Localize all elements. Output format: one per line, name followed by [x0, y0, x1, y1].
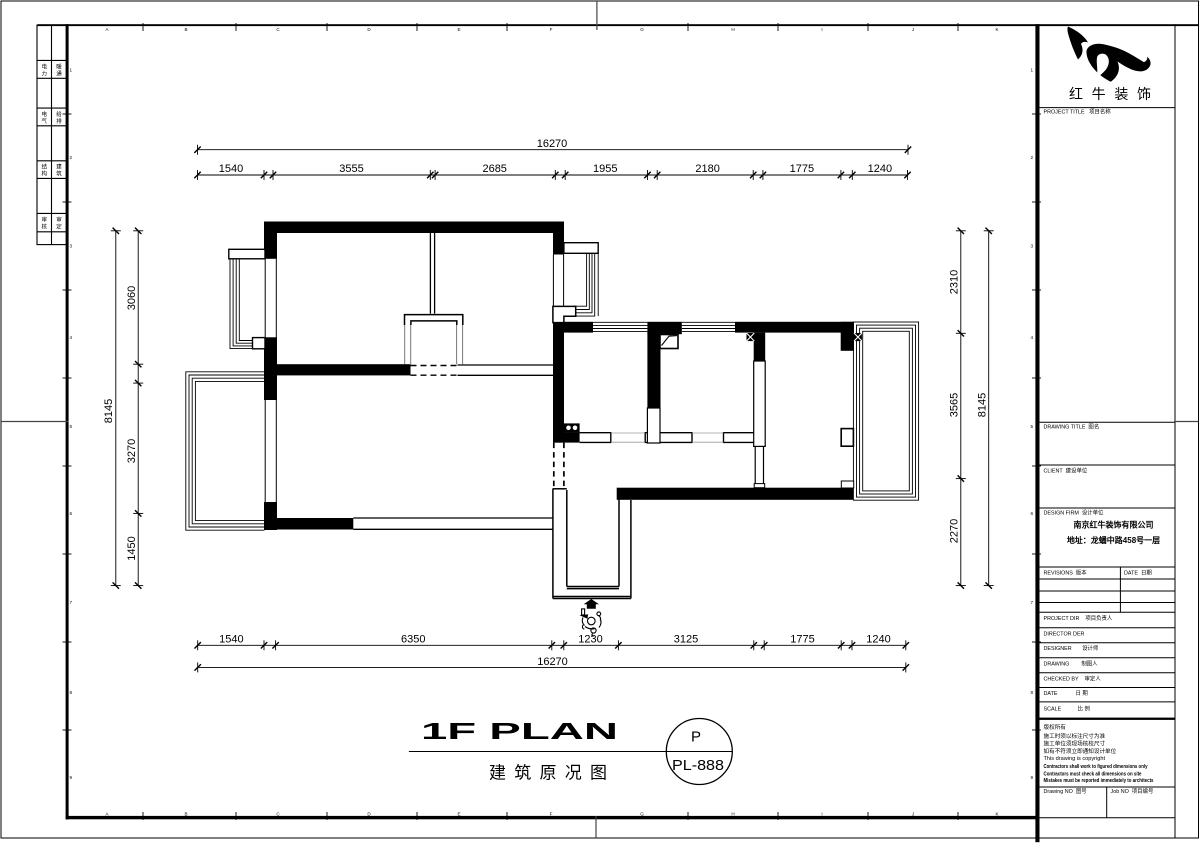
svg-text:3125: 3125 — [674, 634, 698, 646]
svg-text:6: 6 — [70, 511, 73, 516]
svg-text:如有不符须立即通知设计单位: 如有不符须立即通知设计单位 — [1044, 747, 1117, 755]
svg-text:9: 9 — [70, 775, 73, 780]
svg-text:施工单位须现场核校尺寸: 施工单位须现场核校尺寸 — [1044, 740, 1106, 748]
svg-text:1230: 1230 — [578, 634, 602, 646]
svg-text:电: 电 — [42, 110, 48, 118]
svg-text:审: 审 — [42, 216, 48, 224]
svg-text:电: 电 — [42, 63, 48, 71]
svg-text:Contractors shall work to figu: Contractors shall work to figured dimens… — [1044, 764, 1149, 770]
svg-text:力: 力 — [42, 70, 48, 78]
svg-text:Job NO 项目编号: Job NO 项目编号 — [1111, 787, 1154, 795]
svg-text:REVISIONS 版本: REVISIONS 版本 — [1044, 569, 1088, 577]
svg-text:2310: 2310 — [949, 270, 961, 294]
svg-text:1F PLAN: 1F PLAN — [421, 718, 618, 744]
svg-text:1540: 1540 — [219, 163, 243, 175]
svg-text:DATE 日期: DATE 日期 — [1124, 570, 1152, 577]
svg-text:P: P — [691, 729, 701, 746]
svg-text:DIRECTOR DER: DIRECTOR DER — [1044, 631, 1085, 637]
svg-text:气: 气 — [42, 117, 48, 125]
svg-text:2: 2 — [70, 155, 73, 160]
svg-text:This drawing is copyright: This drawing is copyright — [1044, 756, 1106, 762]
svg-text:F: F — [550, 812, 553, 817]
svg-text:给: 给 — [56, 110, 62, 118]
svg-text:DESIGN FIRM 设计单位: DESIGN FIRM 设计单位 — [1044, 509, 1105, 517]
svg-text:2685: 2685 — [482, 163, 506, 175]
svg-text:6350: 6350 — [401, 634, 425, 646]
svg-text:施工时须以标注尺寸为准: 施工时须以标注尺寸为准 — [1044, 732, 1106, 740]
svg-text:1450: 1450 — [126, 536, 138, 560]
svg-text:2180: 2180 — [695, 163, 719, 175]
svg-text:8145: 8145 — [103, 399, 115, 423]
svg-text:B: B — [184, 812, 187, 817]
svg-text:Mistakes must be reported imme: Mistakes must be reported immediately to… — [1044, 778, 1154, 784]
svg-text:I: I — [821, 27, 822, 32]
svg-text:2270: 2270 — [949, 519, 961, 543]
svg-text:E: E — [457, 812, 460, 817]
svg-text:1240: 1240 — [866, 634, 890, 646]
svg-text:6: 6 — [1031, 511, 1034, 516]
svg-text:结: 结 — [42, 163, 48, 171]
svg-text:5: 5 — [1031, 424, 1034, 429]
svg-text:建: 建 — [56, 163, 62, 171]
svg-text:CHECKED BY 审定人: CHECKED BY 审定人 — [1044, 674, 1102, 682]
svg-text:3: 3 — [70, 244, 73, 249]
svg-text:8: 8 — [70, 690, 73, 695]
svg-text:SCALE 比 例: SCALE 比 例 — [1044, 704, 1090, 712]
svg-text:PROJECT TITLE 项目名称: PROJECT TITLE 项目名称 — [1044, 108, 1112, 116]
svg-text:核: 核 — [42, 223, 48, 231]
svg-text:3: 3 — [1031, 244, 1034, 249]
svg-text:J: J — [912, 27, 914, 32]
svg-text:暖: 暖 — [56, 63, 62, 71]
svg-text:H: H — [731, 812, 734, 817]
svg-text:9: 9 — [1031, 775, 1034, 780]
svg-text:7: 7 — [70, 600, 73, 605]
svg-text:4: 4 — [70, 335, 73, 340]
svg-text:PL-888: PL-888 — [672, 758, 724, 774]
svg-text:PROJECT DIR 项目负责人: PROJECT DIR 项目负责人 — [1044, 614, 1113, 622]
svg-text:F: F — [550, 27, 553, 32]
svg-text:CLIENT 建设单位: CLIENT 建设单位 — [1044, 467, 1088, 475]
svg-text:地址：龙蟠中路458号一层: 地址：龙蟠中路458号一层 — [1067, 535, 1160, 545]
svg-text:1955: 1955 — [593, 163, 617, 175]
svg-text:16270: 16270 — [537, 656, 568, 668]
svg-text:1775: 1775 — [790, 163, 814, 175]
svg-text:8: 8 — [1031, 690, 1034, 695]
svg-text:筑: 筑 — [56, 170, 62, 178]
svg-text:构: 构 — [42, 170, 48, 178]
svg-text:G: G — [640, 27, 644, 32]
svg-text:定: 定 — [56, 223, 62, 231]
svg-text:3270: 3270 — [126, 439, 138, 463]
svg-text:1: 1 — [70, 68, 73, 73]
svg-text:版权所有: 版权所有 — [1044, 723, 1067, 731]
svg-text:G: G — [640, 812, 644, 817]
svg-text:DESIGNER 设计师: DESIGNER 设计师 — [1044, 644, 1099, 652]
svg-text:E: E — [457, 27, 460, 32]
svg-text:1: 1 — [1031, 68, 1034, 73]
svg-text:DATE 日 期: DATE 日 期 — [1044, 690, 1088, 697]
svg-text:4: 4 — [1031, 335, 1034, 340]
svg-text:DRAWING 制图人: DRAWING 制图人 — [1044, 659, 1099, 667]
svg-text:5: 5 — [70, 424, 73, 429]
svg-text:1775: 1775 — [790, 634, 814, 646]
svg-text:3565: 3565 — [949, 393, 961, 417]
svg-text:排: 排 — [56, 117, 62, 125]
svg-text:1540: 1540 — [219, 634, 243, 646]
svg-text:H: H — [731, 27, 734, 32]
svg-text:2: 2 — [1031, 155, 1034, 160]
svg-text:1240: 1240 — [868, 163, 892, 175]
svg-text:3060: 3060 — [126, 286, 138, 310]
svg-text:B: B — [184, 27, 187, 32]
svg-text:I: I — [821, 812, 822, 817]
svg-text:8145: 8145 — [977, 393, 989, 417]
svg-text:DRAWING TITLE 图名: DRAWING TITLE 图名 — [1044, 423, 1100, 431]
svg-text:16270: 16270 — [537, 138, 568, 150]
svg-text:J: J — [912, 812, 914, 817]
svg-text:审: 审 — [56, 216, 62, 224]
svg-text:Contractors must check all dim: Contractors must check all dimensions on… — [1044, 772, 1143, 778]
svg-text:3555: 3555 — [339, 163, 363, 175]
svg-text:通: 通 — [56, 70, 62, 78]
svg-text:7: 7 — [1031, 600, 1034, 605]
svg-text:南京红牛装饰有限公司: 南京红牛装饰有限公司 — [1074, 520, 1154, 530]
svg-text:Drawing NO 图号: Drawing NO 图号 — [1044, 787, 1088, 795]
